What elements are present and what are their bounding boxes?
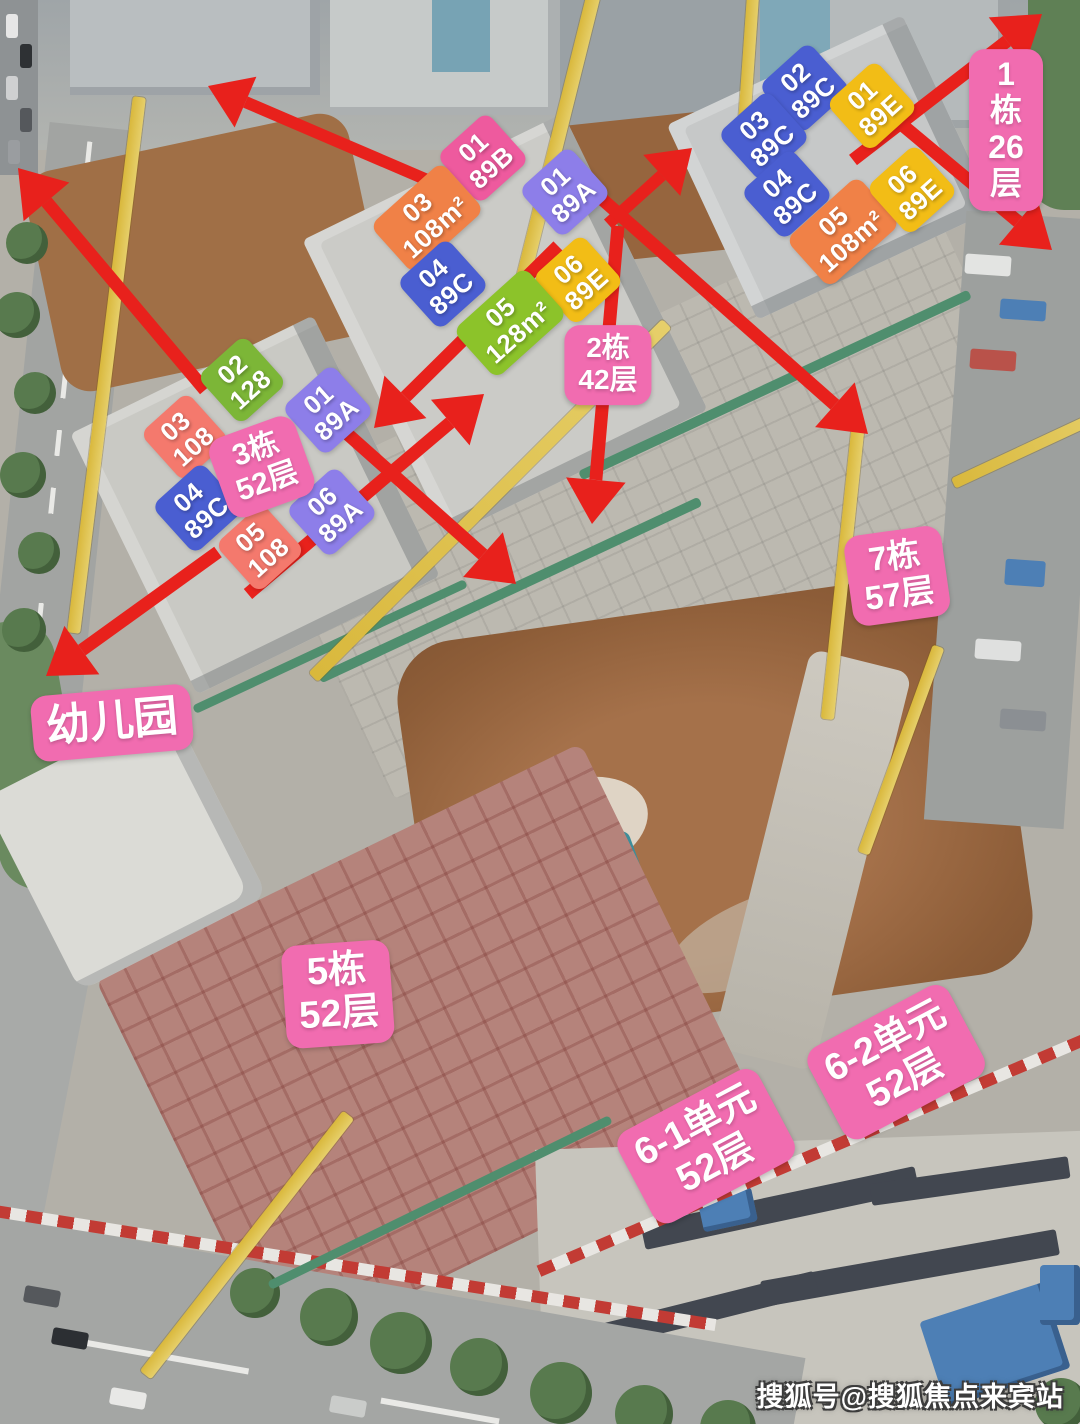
red-arrow-7: [566, 477, 626, 524]
building-label-tower-7: 7栋57层: [842, 524, 951, 628]
red-arrow-2: [246, 102, 432, 182]
building-label-text: 1栋: [983, 56, 1029, 129]
building-label-tower-5: 5栋52层: [280, 939, 395, 1049]
building-label-text: 5栋: [295, 947, 378, 996]
red-arrow-11: [82, 552, 218, 650]
building-label-kindergarten: 幼儿园: [29, 683, 194, 763]
building-label-text: 26层: [983, 129, 1029, 202]
building-label-text: 2栋: [578, 332, 637, 364]
building-label-text: 42层: [578, 364, 637, 396]
building-label-tower-2: 2栋42层: [564, 325, 651, 405]
construction-site-aerial-photo: 0289C0389C0189E0489C05108m²0689E0189B031…: [0, 0, 1080, 1424]
building-label-tower-1: 1栋26层: [969, 49, 1043, 211]
red-arrow-1: [46, 202, 205, 390]
watermark: 搜狐号@搜狐焦点来宾站: [757, 1375, 1064, 1414]
building-label-text: 幼儿园: [44, 691, 180, 752]
building-label-text: 52层: [298, 990, 381, 1039]
